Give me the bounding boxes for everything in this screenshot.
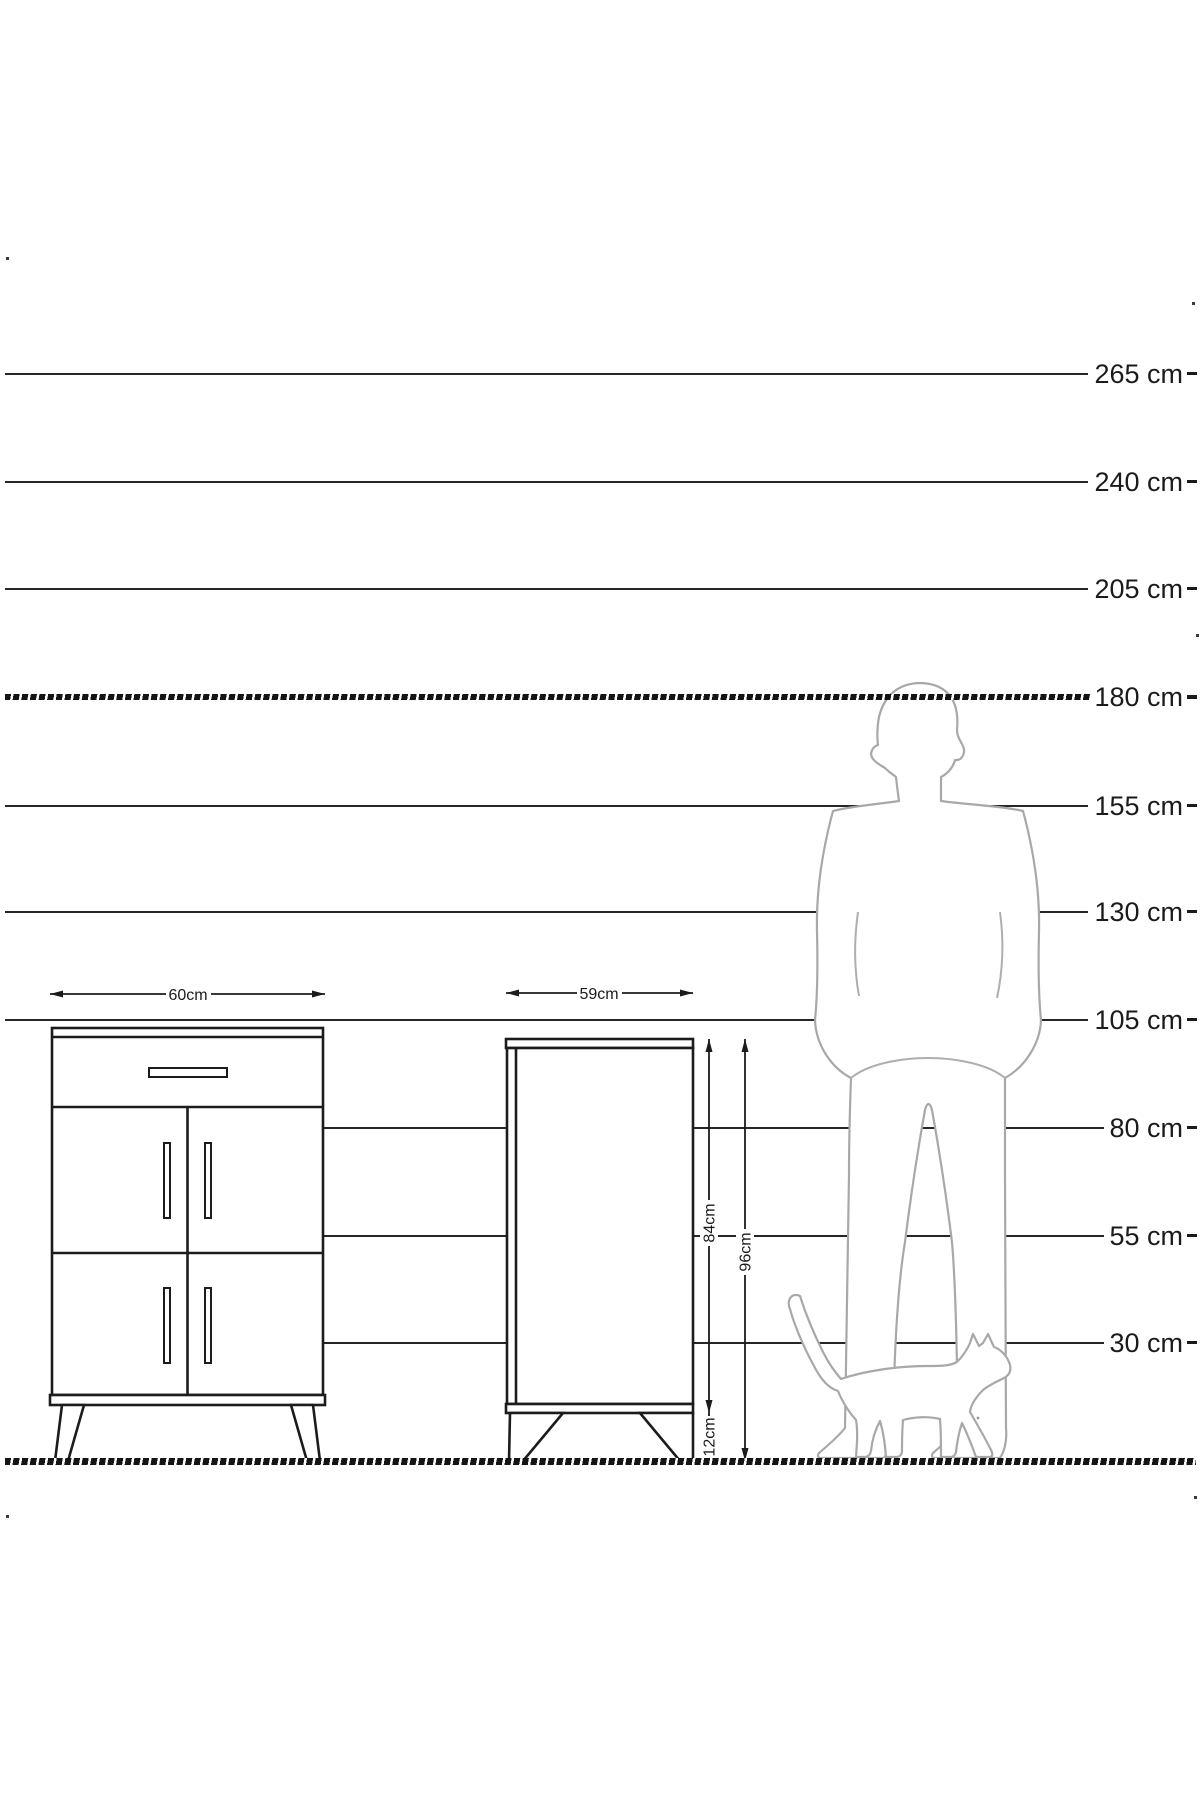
dim-arrow-up [706, 1039, 713, 1052]
dim-arrow-right [312, 991, 325, 998]
dim-leg-height-label: 12cm [702, 1417, 719, 1456]
speck [6, 257, 9, 260]
front-door-handle-bottom-left [164, 1288, 170, 1363]
dim-leg-height: 12cm [701, 1413, 719, 1461]
dim-arrow-left [50, 991, 63, 998]
dim-arrow-left [506, 990, 519, 997]
dim-side-width-label: 59cm [579, 986, 618, 1003]
ruler-tick-180 [1187, 695, 1197, 699]
dim-body-height: 84cm [700, 1039, 719, 1413]
speck [1194, 1496, 1197, 1499]
diagram-scene: 60cm 59cm 84cm 96cm [0, 0, 1200, 1800]
dim-arrow-down [706, 1400, 713, 1413]
front-door-handle-top-left [164, 1143, 170, 1218]
speck [1196, 634, 1199, 637]
furniture-dimension-diagram: 265 cm 240 cm 205 cm 155 cm 130 cm 105 c… [0, 0, 1200, 1800]
side-cabinet-body [507, 1048, 693, 1404]
side-cabinet-right-leg [640, 1413, 693, 1461]
side-cabinet-plinth [506, 1404, 693, 1413]
front-cabinet-plinth [50, 1395, 325, 1405]
man-silhouette [815, 683, 1041, 1458]
dim-front-width: 60cm [50, 985, 325, 1004]
front-cabinet-right-leg [291, 1405, 320, 1461]
dim-total-height: 96cm [736, 1039, 755, 1461]
dim-side-width: 59cm [506, 984, 693, 1003]
dim-front-width-label: 60cm [168, 987, 207, 1004]
dim-arrow-right [680, 990, 693, 997]
speck [1192, 302, 1195, 305]
dim-body-height-label: 84cm [702, 1203, 719, 1242]
side-view-cabinet [506, 1039, 693, 1461]
speck [6, 1515, 9, 1518]
dim-arrow-up [742, 1039, 749, 1052]
man-outline [815, 683, 1041, 1458]
front-view-cabinet [50, 1028, 325, 1461]
dim-total-height-label: 96cm [738, 1232, 755, 1271]
side-cabinet-top-panel [506, 1039, 693, 1048]
ground-hatched-line [5, 1458, 1196, 1465]
eye-level-hatched-line-180 [5, 694, 1090, 700]
front-door-handle-bottom-right [205, 1288, 211, 1363]
side-cabinet-left-leg [509, 1413, 563, 1461]
front-drawer-handle [149, 1068, 227, 1077]
front-cabinet-left-leg [55, 1405, 84, 1461]
cat-fur-dot [977, 1417, 980, 1420]
front-door-handle-top-right [205, 1143, 211, 1218]
